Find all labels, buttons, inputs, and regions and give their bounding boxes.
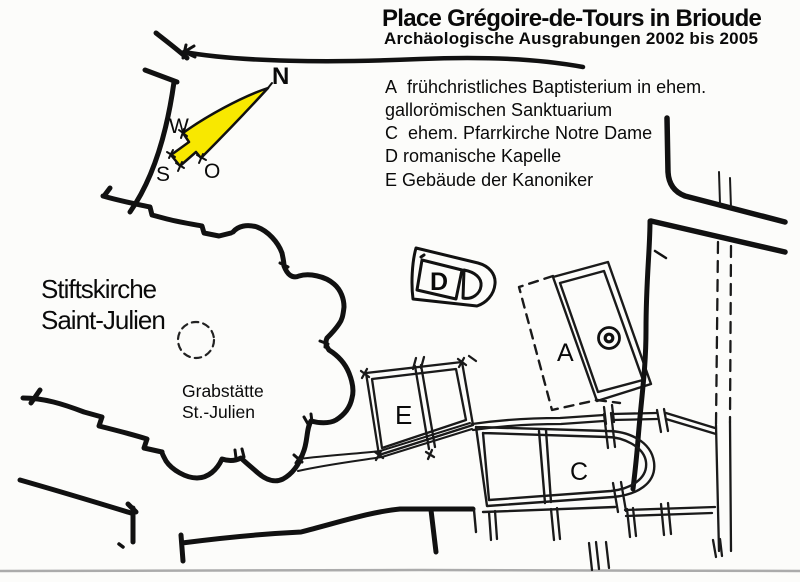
svg-text:S: S [156, 163, 170, 186]
svg-text:D: D [430, 268, 448, 296]
svg-text:W: W [169, 115, 189, 138]
svg-text:C: C [570, 458, 588, 486]
svg-text:A: A [557, 339, 574, 367]
svg-text:E: E [395, 400, 412, 430]
svg-text:N: N [272, 63, 289, 90]
svg-text:O: O [204, 160, 220, 183]
